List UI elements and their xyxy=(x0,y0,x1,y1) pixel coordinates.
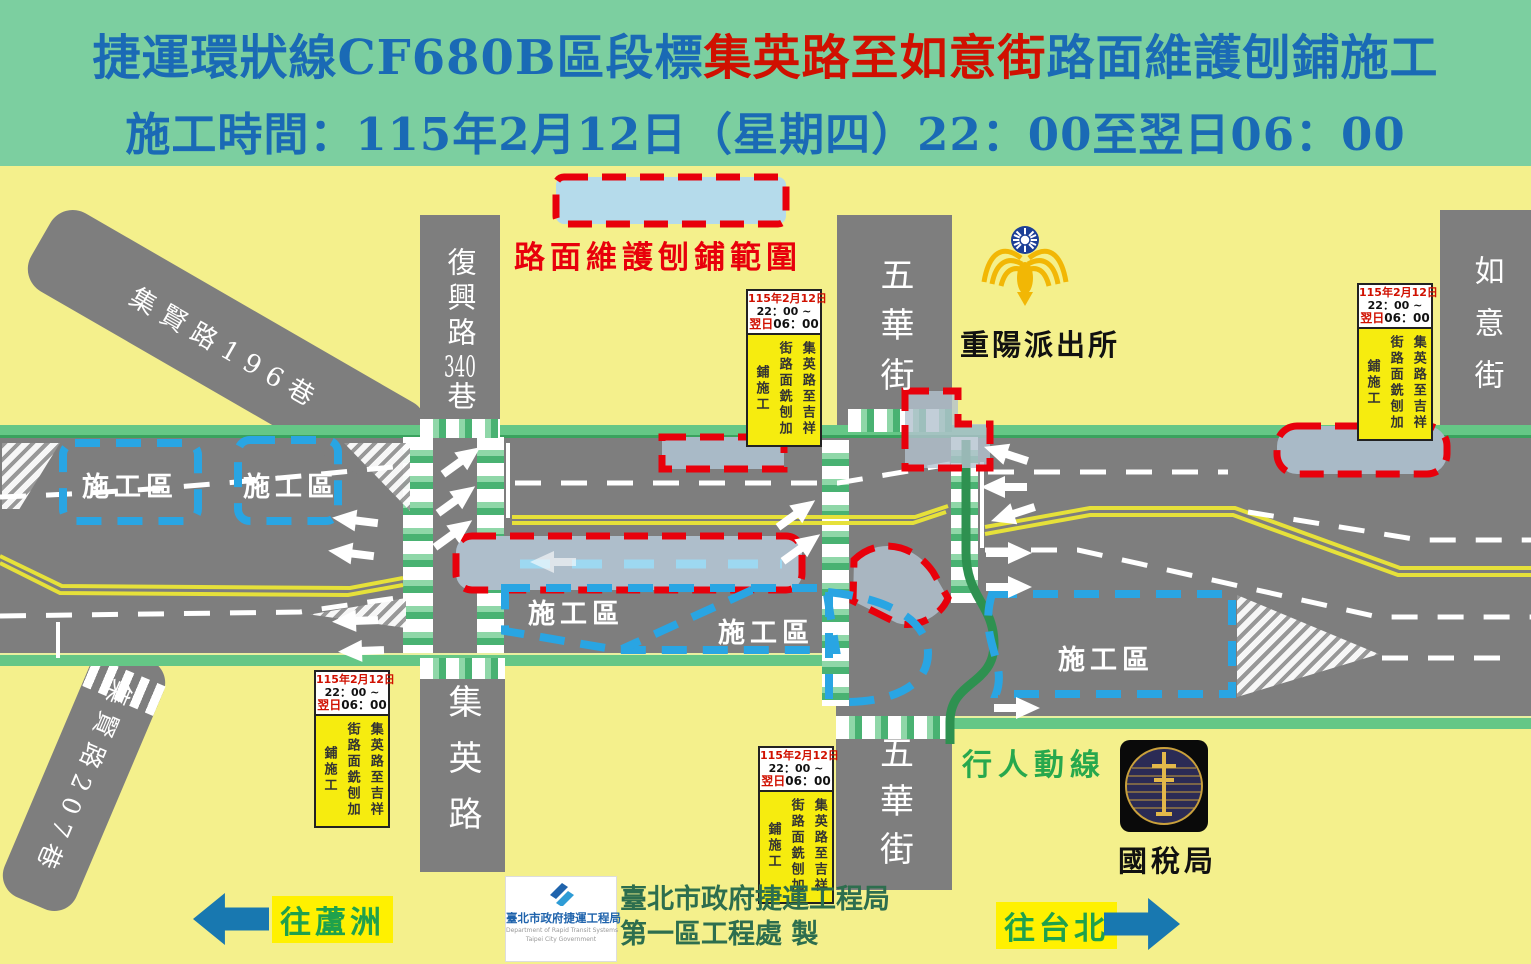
police-station-label: 重陽派出所 xyxy=(960,322,1120,364)
direction-arrow-west-icon xyxy=(193,893,269,945)
crosswalk-wuhua-west xyxy=(822,440,849,706)
title-highlight: 集英路至如意街 xyxy=(704,30,1047,86)
road-jixian207: 集賢路207巷 xyxy=(0,639,173,918)
crosswalk-fuxing-east xyxy=(477,437,504,653)
crosswalk-wuhua-east xyxy=(951,437,978,603)
dorts-mark-icon xyxy=(542,880,580,906)
construction-zone-label-5: 施工區 xyxy=(1058,638,1154,677)
schedule-info-box-north: 115年2月12日 22：00 ~ 翌日06：00 集英路至吉祥街路面銑刨加鋪施… xyxy=(746,289,822,447)
legend-label: 路面維護刨鋪範圍 xyxy=(514,232,802,277)
road-jixian196-label: 集賢路196巷 xyxy=(124,277,330,417)
police-badge-icon xyxy=(975,220,1075,318)
road-wuhua-north-label: 五華街 xyxy=(837,232,952,432)
schedule-body: 集英路至吉祥街路面銑刨加鋪施工 xyxy=(749,339,818,439)
dorts-logo: 臺北市政府捷運工程局 Department of Rapid Transit S… xyxy=(505,876,617,962)
construction-zone-label-2: 施工區 xyxy=(243,465,339,504)
construction-zone-label-1: 施工區 xyxy=(82,465,178,504)
sidewalk-stripe-bottom-west xyxy=(0,653,836,666)
construction-notice-map: { "header": { "line1_prefix": "捷運環狀線CF68… xyxy=(0,0,1531,964)
to-luzhou-label: 往蘆洲 xyxy=(272,896,393,943)
schedule-info-box-south: 115年2月12日 22：00 ~ 翌日06：00 集英路至吉祥街路面銑刨加鋪施… xyxy=(758,746,834,904)
title-banner: 捷運環狀線CF680B區段標集英路至如意街路面維護刨鋪施工 施工時間：115年2… xyxy=(0,0,1531,166)
dorts-name-en2: Taipei City Government xyxy=(506,935,616,944)
schedule-info-box-west: 115年2月12日 22：00 ~ 翌日06：00 集英路至吉祥街路面銑刨加鋪施… xyxy=(314,670,390,828)
tax-bureau-label: 國稅局 xyxy=(1118,838,1217,880)
road-jixian207-label: 集賢路207巷 xyxy=(26,675,141,883)
tax-bureau-logo-icon xyxy=(1120,740,1208,832)
dorts-name-zh: 臺北市政府捷運工程局 xyxy=(506,910,616,926)
road-jiying-label: 集英路 xyxy=(420,668,505,868)
credit-text: 臺北市政府捷運工程局 第一區工程處 製 xyxy=(620,882,890,952)
dorts-name-en1: Department of Rapid Transit Systems xyxy=(506,926,616,935)
to-taipei-label: 往台北 xyxy=(996,902,1117,949)
construction-zone-label-4: 施工區 xyxy=(718,611,814,650)
road-wuhua-south-label: 五華街 xyxy=(836,728,952,886)
construction-zone-label-3: 施工區 xyxy=(528,592,624,631)
title-line2: 施工時間：115年2月12日（星期四）22：00至翌日06：00 xyxy=(0,98,1531,163)
main-road-east xyxy=(836,437,1531,716)
schedule-header: 115年2月12日 22：00 ~ 翌日06：00 xyxy=(748,291,820,335)
schedule-info-box-east: 115年2月12日 22：00 ~ 翌日06：00 集英路至吉祥街路面銑刨加鋪施… xyxy=(1357,283,1433,441)
road-fuxing340-label: 復興路340巷 xyxy=(420,228,500,434)
road-ruyi-label: 如意街 xyxy=(1440,228,1531,438)
title-line1: 捷運環狀線CF680B區段標集英路至如意街路面維護刨鋪施工 xyxy=(0,18,1531,88)
pedestrian-path-label: 行人動線 xyxy=(962,740,1106,784)
legend-swatch xyxy=(556,177,786,224)
